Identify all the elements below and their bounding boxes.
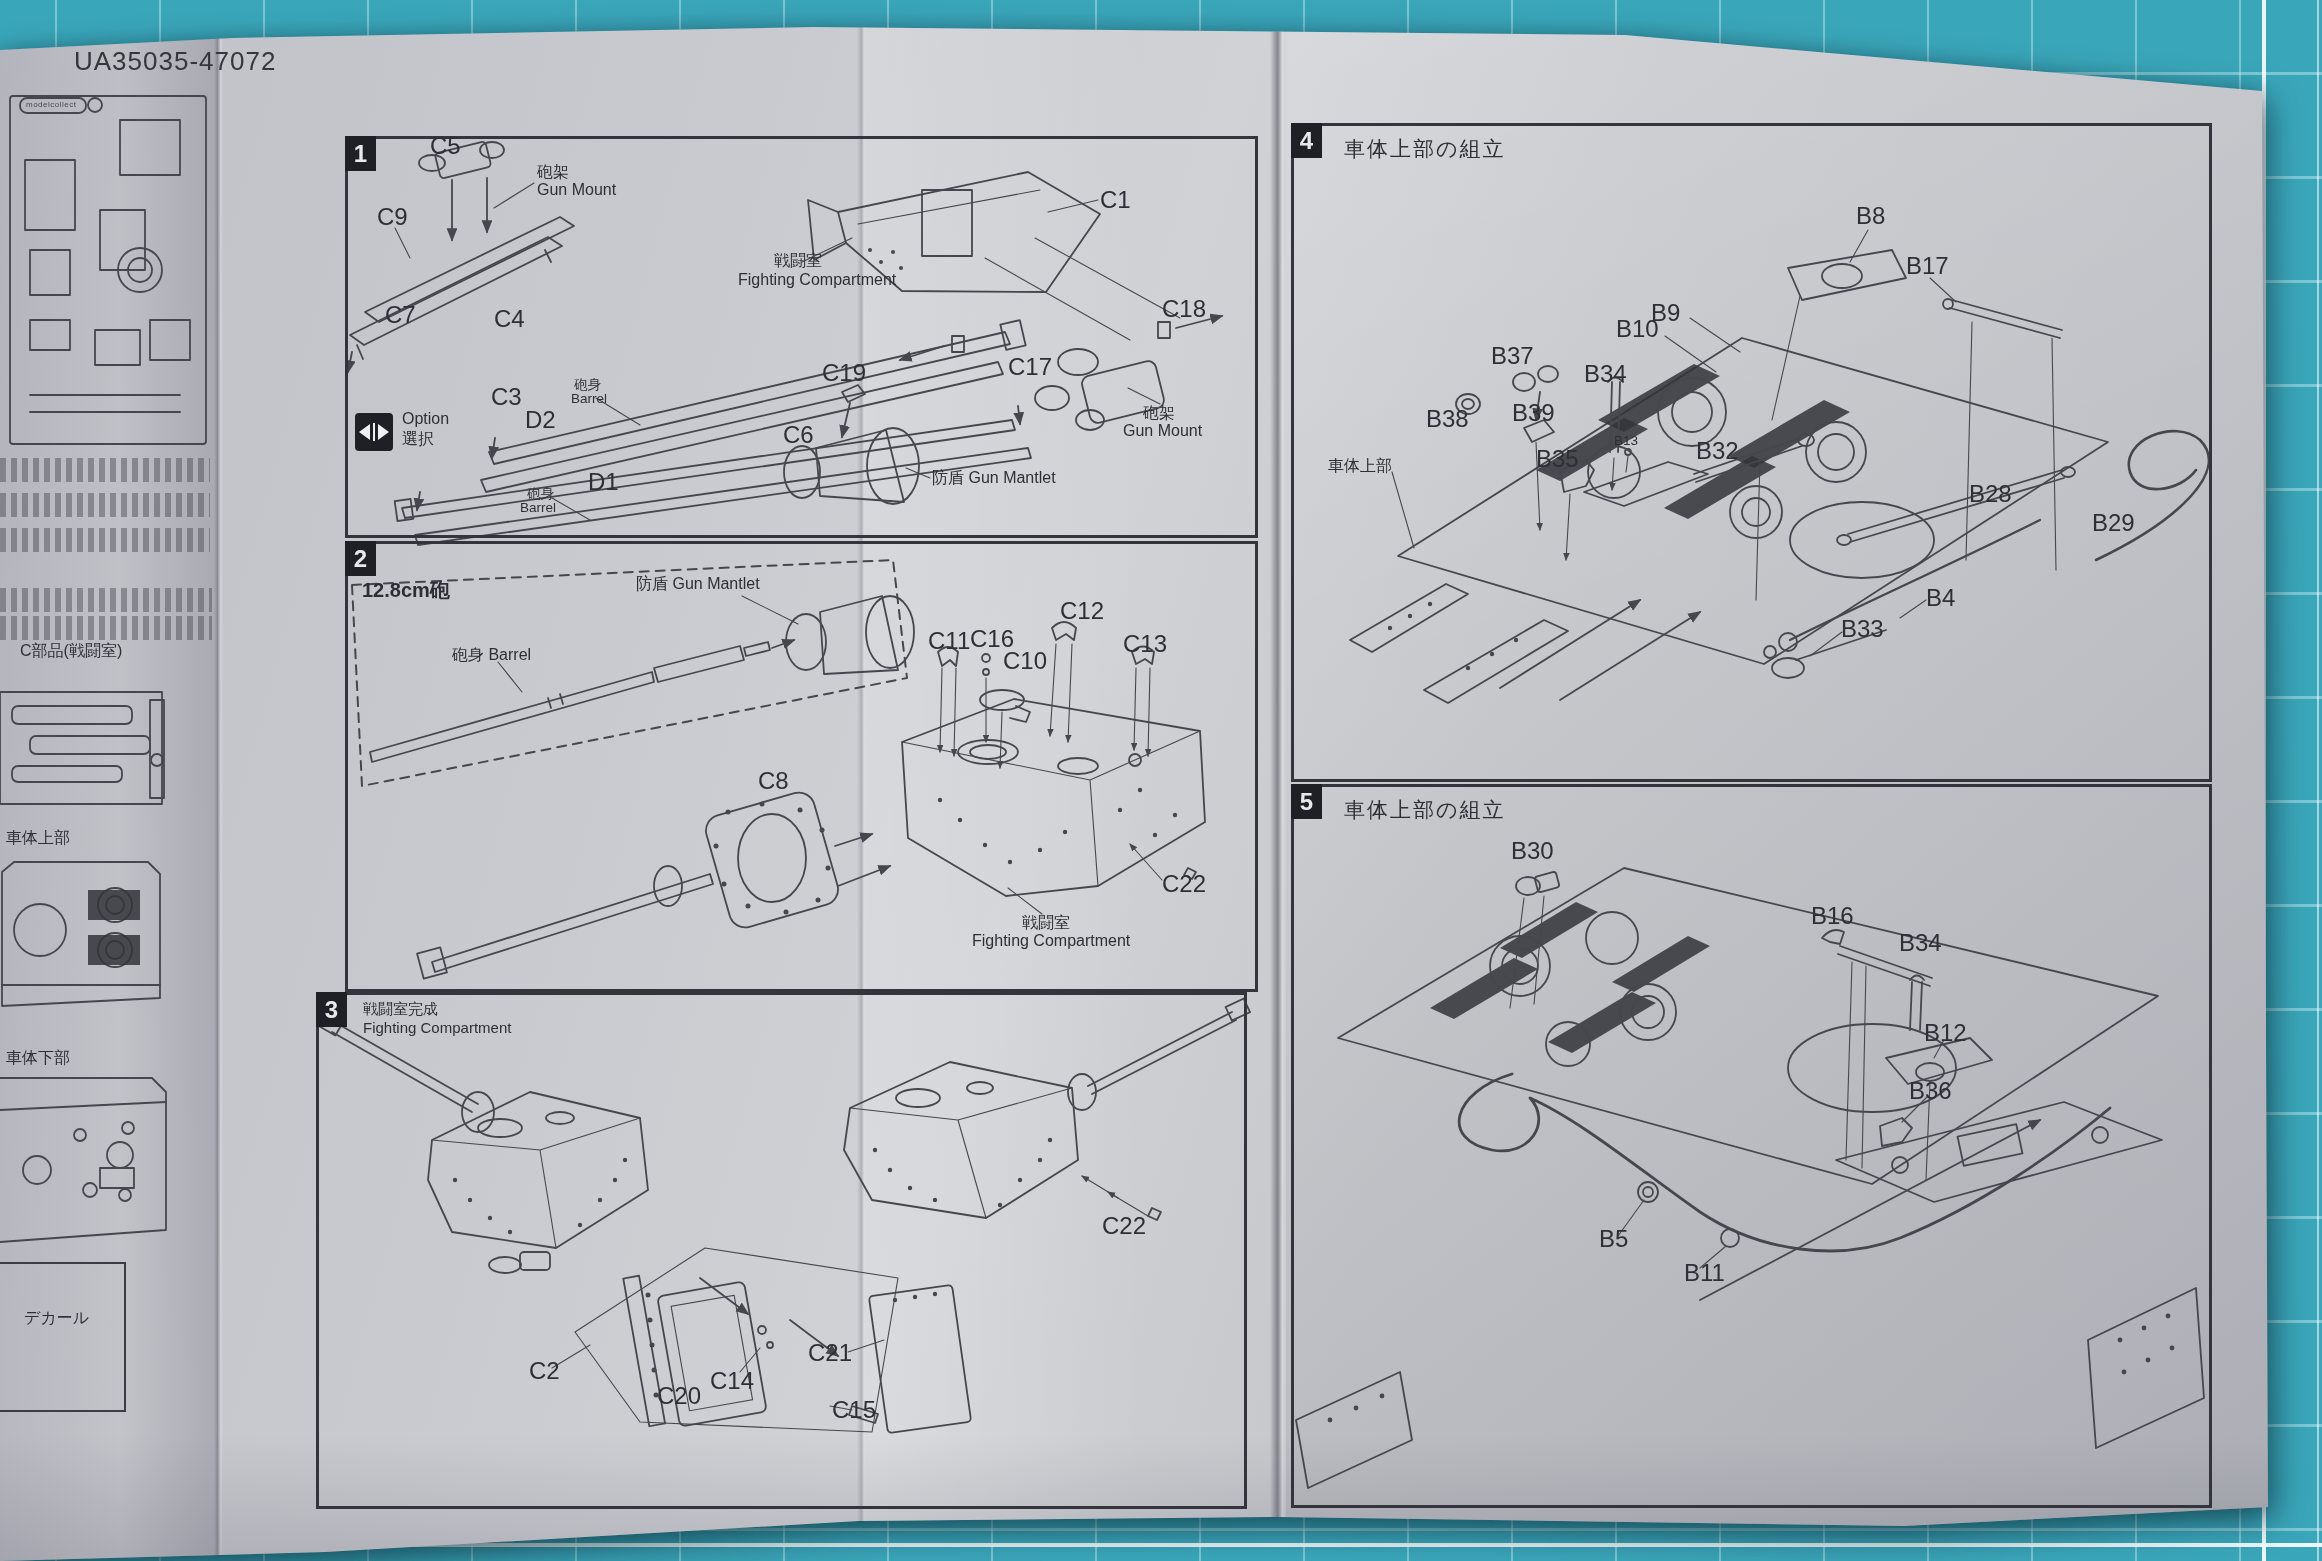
step-4-box: 4 車体上部の組立 xyxy=(1291,123,2212,782)
part-label: B34 xyxy=(1584,361,1627,386)
step-2-box: 2 xyxy=(345,541,1258,992)
part-label: Barrel xyxy=(520,501,556,515)
part-label: 車体下部 xyxy=(6,1050,70,1067)
part-label: B11 xyxy=(1684,1260,1725,1285)
part-label: C15 xyxy=(832,1397,876,1422)
photo-scene: UA35035-47072 modelcollect 1 2 3 戦闘室完成 F… xyxy=(0,0,2322,1561)
part-label: C12 xyxy=(1060,598,1104,623)
part-label: C18 xyxy=(1162,296,1206,321)
part-label: C17 xyxy=(1008,354,1052,379)
part-label: C3 xyxy=(491,384,522,409)
part-label: 砲架 xyxy=(537,164,569,181)
part-label: デカール xyxy=(24,1310,89,1327)
part-label: Fighting Compartment xyxy=(738,272,896,289)
part-label: B34 xyxy=(1899,930,1942,955)
step-3-box: 3 戦闘室完成 Fighting Compartment xyxy=(316,992,1247,1509)
part-label: C22 xyxy=(1102,1213,1146,1238)
part-label: C5 xyxy=(430,133,461,158)
step-5-title: 車体上部の組立 xyxy=(1344,796,1506,824)
part-label: B39 xyxy=(1512,400,1555,425)
step-5-box: 5 車体上部の組立 xyxy=(1291,784,2212,1508)
part-label: B28 xyxy=(1969,481,2012,506)
part-label: 砲身 Barrel xyxy=(452,647,531,664)
paper: UA35035-47072 modelcollect 1 2 3 戦闘室完成 F… xyxy=(0,0,2322,1561)
part-label: Barrel xyxy=(571,392,607,406)
part-label: D2 xyxy=(525,407,556,432)
instruction-sheet: UA35035-47072 modelcollect 1 2 3 戦闘室完成 F… xyxy=(0,0,2322,1561)
step-3-number-badge: 3 xyxy=(316,992,347,1027)
part-label: C部品(戦闘室) xyxy=(20,643,122,660)
part-label: B38 xyxy=(1426,406,1469,431)
option-divider xyxy=(373,423,375,441)
part-label: B5 xyxy=(1599,1226,1628,1251)
part-label: B13 xyxy=(1614,434,1638,448)
sprue-c-drawing xyxy=(10,96,206,444)
part-label: C4 xyxy=(494,306,525,331)
part-label: 防盾 Gun Mantlet xyxy=(932,470,1056,487)
step-3-title-en: Fighting Compartment xyxy=(363,1019,511,1038)
step-4-number-badge: 4 xyxy=(1291,123,1322,158)
part-label: D1 xyxy=(588,469,619,494)
option-right-arrow-icon xyxy=(378,424,389,440)
part-label: B33 xyxy=(1841,616,1884,641)
part-label: C7 xyxy=(385,302,416,327)
part-label: B29 xyxy=(2092,510,2135,535)
brand-logo: modelcollect xyxy=(26,100,76,109)
part-label: B8 xyxy=(1856,203,1885,228)
step-5-number-badge: 5 xyxy=(1291,784,1322,819)
sprue-tread-rows xyxy=(0,470,212,628)
part-label: C14 xyxy=(710,1368,754,1393)
step-2-number-badge: 2 xyxy=(345,541,376,576)
lower-hull-drawing xyxy=(0,1078,166,1242)
part-label: 戦闘室 xyxy=(774,253,822,270)
part-label: C21 xyxy=(808,1340,852,1365)
part-label: 防盾 Gun Mantlet xyxy=(636,576,760,593)
part-label: C6 xyxy=(783,422,814,447)
part-label: C22 xyxy=(1162,871,1206,896)
part-label: B16 xyxy=(1811,903,1854,928)
kit-code: UA35035-47072 xyxy=(74,46,276,77)
part-label: B35 xyxy=(1536,446,1579,471)
part-label: C13 xyxy=(1123,631,1167,656)
part-label: B17 xyxy=(1906,253,1949,278)
sprue-barrel-drawing xyxy=(0,692,164,804)
page-gap xyxy=(1270,0,1286,1561)
step-3-title-jp: 戦闘室完成 xyxy=(363,1000,511,1019)
step-3-title: 戦闘室完成 Fighting Compartment xyxy=(363,1000,511,1038)
part-label: 選択 xyxy=(402,431,434,448)
option-select-icon xyxy=(355,413,393,451)
part-label: 戦闘室 xyxy=(1022,915,1070,932)
part-label: C2 xyxy=(529,1358,560,1383)
part-label: Fighting Compartment xyxy=(972,933,1130,950)
decal-box xyxy=(0,1262,126,1412)
part-label: 車体上部 xyxy=(1328,458,1392,475)
part-label: C1 xyxy=(1100,187,1131,212)
part-label: B10 xyxy=(1616,316,1659,341)
part-label: B32 xyxy=(1696,438,1739,463)
part-label: C9 xyxy=(377,204,408,229)
part-label: 砲架 xyxy=(1143,405,1175,422)
option-left-arrow-icon xyxy=(359,424,370,440)
part-label: C20 xyxy=(657,1383,701,1408)
part-label: Gun Mount xyxy=(537,182,616,199)
part-label: B4 xyxy=(1926,585,1955,610)
part-label: B12 xyxy=(1924,1020,1967,1045)
step-4-title: 車体上部の組立 xyxy=(1344,135,1506,163)
part-label: C10 xyxy=(1003,648,1047,673)
part-label: 車体上部 xyxy=(6,830,70,847)
fold-crease-left xyxy=(214,0,223,1561)
part-label: B37 xyxy=(1491,343,1534,368)
part-label: Gun Mount xyxy=(1123,423,1202,440)
part-label: C8 xyxy=(758,768,789,793)
part-label: 12.8cm砲 xyxy=(362,580,450,601)
part-label: C19 xyxy=(822,360,866,385)
part-label: C11 xyxy=(928,628,970,653)
upper-hull-drawing xyxy=(2,862,160,1006)
part-label: Option xyxy=(402,411,449,428)
part-label: B36 xyxy=(1909,1078,1952,1103)
step-1-number-badge: 1 xyxy=(345,136,376,171)
part-label: B30 xyxy=(1511,838,1554,863)
